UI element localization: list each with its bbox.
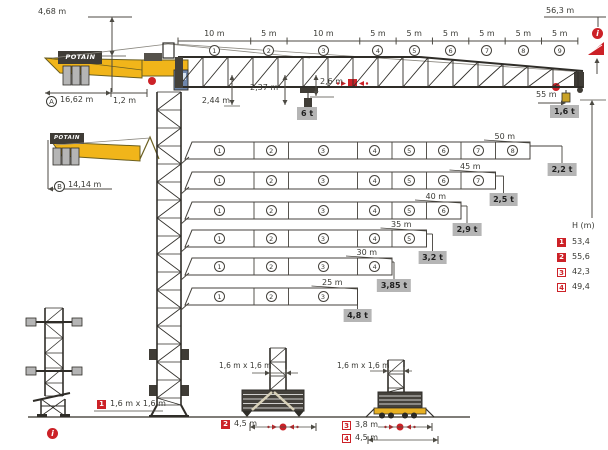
mast-brace xyxy=(157,380,181,398)
bar-section-number: 2 xyxy=(266,233,277,244)
counterweight-block xyxy=(63,66,71,85)
base-config-icon: 3 xyxy=(342,421,351,430)
arrowhead xyxy=(590,100,595,105)
arrowhead xyxy=(314,91,319,96)
height-row-config-icon: 3 xyxy=(557,268,566,277)
info-icon-bottom: i xyxy=(47,428,58,439)
jib-section-length-label: 5 m xyxy=(396,29,432,39)
jib-diagonal xyxy=(478,64,503,87)
jib-diagonal xyxy=(503,66,528,87)
mast-brace xyxy=(388,360,404,374)
mast-brace xyxy=(388,374,404,388)
a-frame xyxy=(140,137,159,159)
mast-brace xyxy=(157,362,181,380)
height-row-value: 55,6 xyxy=(572,252,590,262)
mast-brace xyxy=(45,338,63,353)
radius-a-value: 16,62 m xyxy=(60,95,93,104)
base-config-icon: 4 xyxy=(342,434,351,443)
mast-brace xyxy=(157,110,181,128)
tie-bar xyxy=(168,44,310,58)
jib-diagonal xyxy=(203,57,228,87)
arrowhead xyxy=(110,51,115,56)
jib-section-number: 5 xyxy=(409,45,420,56)
cross-base-mast-label: 1,6 m x 1,6 m xyxy=(219,361,271,371)
arrowhead xyxy=(433,438,438,443)
bar-section-number: 2 xyxy=(266,291,277,302)
tip-radius-label: 55 m xyxy=(536,90,557,100)
arrowhead xyxy=(48,187,53,192)
mast-brace xyxy=(388,388,404,392)
circled-letter-a: A xyxy=(46,96,57,107)
radius-b-label: B14,14 m xyxy=(54,180,101,192)
mast-brace xyxy=(157,182,181,200)
jib-section-number: 8 xyxy=(518,45,529,56)
configuration-capacity-badge: 2,9 t xyxy=(453,223,482,236)
configuration-length-label: 30 m xyxy=(292,248,377,258)
outrigger-foot xyxy=(242,411,252,417)
mast-brace xyxy=(157,164,181,182)
mast-brace xyxy=(270,362,286,376)
jib-section-length-label: 5 m xyxy=(505,29,541,39)
jib-diagonal xyxy=(453,62,478,87)
bar-section-number: 5 xyxy=(404,145,415,156)
arrowhead xyxy=(230,75,235,80)
configuration-length-label: 45 m xyxy=(396,162,481,172)
mast-foot xyxy=(181,405,187,416)
jib-diagonal xyxy=(378,57,403,87)
bar-section-number: 3 xyxy=(318,175,329,186)
mast-brace xyxy=(270,376,286,390)
configuration-length-label: 25 m xyxy=(258,278,343,288)
crane-specification-diagram: 4,68 m 56,3 m A16,62 m 1,2 m 2,44 m 2,37… xyxy=(0,0,608,450)
arrowhead xyxy=(314,75,319,80)
jib-section-length-label: 5 m xyxy=(469,29,505,39)
hook-clearance-2-label: 2,37 m xyxy=(250,83,278,93)
bar-section-number: 3 xyxy=(318,233,329,244)
bar-section-number: 1 xyxy=(214,205,225,216)
anchor-collars xyxy=(26,318,82,375)
bar-section-number: 7 xyxy=(473,145,484,156)
counterweight-block xyxy=(62,148,70,165)
counterweight-block xyxy=(53,148,61,165)
tip-hook xyxy=(562,93,570,102)
mast-brace xyxy=(157,254,181,272)
height-row-config-icon: 1 xyxy=(557,238,566,247)
bar-section-number: 1 xyxy=(214,261,225,272)
max-capacity-badge: 6 t xyxy=(297,107,317,120)
radius-a-label: A16,62 m xyxy=(46,95,93,107)
cross-base-width-label: 4,5 m xyxy=(234,419,257,429)
mast-brace xyxy=(157,308,181,326)
mast-brace xyxy=(157,344,181,362)
height-row-value: 42,3 xyxy=(572,267,590,277)
configuration-capacity-badge: 2,2 t xyxy=(548,163,577,176)
load-curve-triangle-icon xyxy=(588,42,604,55)
configuration-length-label: 50 m xyxy=(430,132,515,142)
arrowhead xyxy=(595,58,600,63)
bar-section-number: 2 xyxy=(266,261,277,272)
hook-block xyxy=(304,98,312,107)
hook-clearance-3-label: 2,6 m xyxy=(320,77,343,87)
arrowhead xyxy=(311,425,316,430)
arrowhead xyxy=(283,75,288,80)
base-config-2-icon: 2 xyxy=(221,420,230,429)
height-row-value: 53,4 xyxy=(572,237,590,247)
bar-section-number: 5 xyxy=(404,175,415,186)
jib-section-number: 3 xyxy=(318,45,329,56)
bar-section-number: 3 xyxy=(318,291,329,302)
jib-diagonal xyxy=(353,57,378,87)
tip-section xyxy=(574,72,584,88)
hoist-marker-dot xyxy=(148,77,156,85)
jib-section-number: 1 xyxy=(209,45,220,56)
tower-mast-size-label: 1,6 m x 1,6 m xyxy=(110,399,166,409)
bar-section-number: 2 xyxy=(266,175,277,186)
chassis-width-label: 4,5 m xyxy=(355,433,378,443)
bogie-wheel xyxy=(411,413,417,419)
mast-brace xyxy=(45,308,63,323)
bar-section-number: 1 xyxy=(214,291,225,302)
counterweight-block xyxy=(81,66,89,85)
mast-brace xyxy=(157,272,181,290)
bar-section-number: 3 xyxy=(318,145,329,156)
brand-logo: POTAIN xyxy=(59,53,102,61)
mast-brace xyxy=(157,326,181,344)
height-row-config-icon: 2 xyxy=(557,253,566,262)
jib-total-length-label: 56,3 m xyxy=(546,6,574,16)
tip-capacity-badge: 1,6 t xyxy=(550,105,579,118)
bar-section-number: 2 xyxy=(266,205,277,216)
bar-section-number: 3 xyxy=(318,261,329,272)
configuration-capacity-badge: 4,8 t xyxy=(343,309,372,322)
circled-letter-b: B xyxy=(54,181,65,192)
height-table-header: H (m) xyxy=(572,221,595,231)
mast-brace xyxy=(157,128,181,146)
arrowhead xyxy=(427,425,432,430)
jib-section-length-label: 5 m xyxy=(251,29,287,39)
height-row-value: 49,4 xyxy=(572,282,590,292)
jib-section-length-label: 10 m xyxy=(178,29,251,39)
configuration-capacity-badge: 3,85 t xyxy=(377,279,411,292)
arrowhead xyxy=(110,17,115,22)
bar-section-number: 5 xyxy=(404,233,415,244)
bar-section-number: 3 xyxy=(318,205,329,216)
jib-section-length-label: 5 m xyxy=(432,29,468,39)
arrowhead xyxy=(230,100,235,105)
bar-section-number: 2 xyxy=(266,145,277,156)
counterjib-height-label: 4,68 m xyxy=(38,7,66,17)
configuration-capacity-badge: 3,2 t xyxy=(418,251,447,264)
mast-brace xyxy=(157,200,181,218)
outrigger-foot xyxy=(294,411,304,417)
jib-root xyxy=(175,57,183,88)
jib-diagonal xyxy=(403,58,428,87)
jib-section-length-label: 10 m xyxy=(287,29,360,39)
arrowhead xyxy=(283,100,288,105)
counterweight-block xyxy=(71,148,79,165)
mast-brace xyxy=(45,353,63,368)
mast-brace xyxy=(45,383,63,396)
bar-section-number: 5 xyxy=(404,205,415,216)
bar-section-number: 1 xyxy=(214,175,225,186)
brand-logo-b: POTAIN xyxy=(50,135,84,141)
configuration-capacity-badge: 2,5 t xyxy=(489,193,518,206)
mast-brace xyxy=(157,92,181,110)
radius-b-value: 14,14 m xyxy=(68,180,101,189)
jib-section-length-label: 5 m xyxy=(360,29,396,39)
info-icon: i xyxy=(592,28,603,39)
chassis-base xyxy=(366,392,434,419)
bogie-wheel xyxy=(388,413,394,419)
pylon xyxy=(163,43,174,58)
chassis-base-mast-label: 1,6 m x 1,6 m xyxy=(337,361,389,371)
bar-section-number: 7 xyxy=(473,175,484,186)
mast-brace xyxy=(157,236,181,254)
base-config-1-icon: 1 xyxy=(97,400,106,409)
bar-section-number: 1 xyxy=(214,145,225,156)
mast-brace xyxy=(270,348,286,362)
height-row-config-icon: 4 xyxy=(557,283,566,292)
hook-clearance-1-label: 2,44 m xyxy=(190,96,230,106)
configuration-length-label: 35 m xyxy=(327,220,412,230)
jib-diagonal xyxy=(428,60,453,87)
axis-offset-label: 1,2 m xyxy=(113,96,136,106)
bogie-wheel xyxy=(402,413,408,419)
winch-housing xyxy=(144,53,162,61)
mast-brace xyxy=(157,218,181,236)
jib-diagonal xyxy=(278,57,303,87)
configuration-length-label: 40 m xyxy=(361,192,446,202)
mast-brace xyxy=(157,146,181,164)
bogie-wheel xyxy=(379,413,385,419)
mast-brace xyxy=(157,290,181,308)
bar-section-number: 1 xyxy=(214,233,225,244)
counterweight-block xyxy=(72,66,80,85)
arrowhead xyxy=(106,91,111,96)
diagram-canvas xyxy=(0,0,608,450)
climbing-cage xyxy=(33,393,70,417)
jib-section-length-label: 5 m xyxy=(542,29,578,39)
mast-brace xyxy=(45,323,63,338)
chassis-width-label: 3,8 m xyxy=(355,420,378,430)
cross-base xyxy=(242,390,304,417)
jib-diagonal xyxy=(528,68,553,87)
